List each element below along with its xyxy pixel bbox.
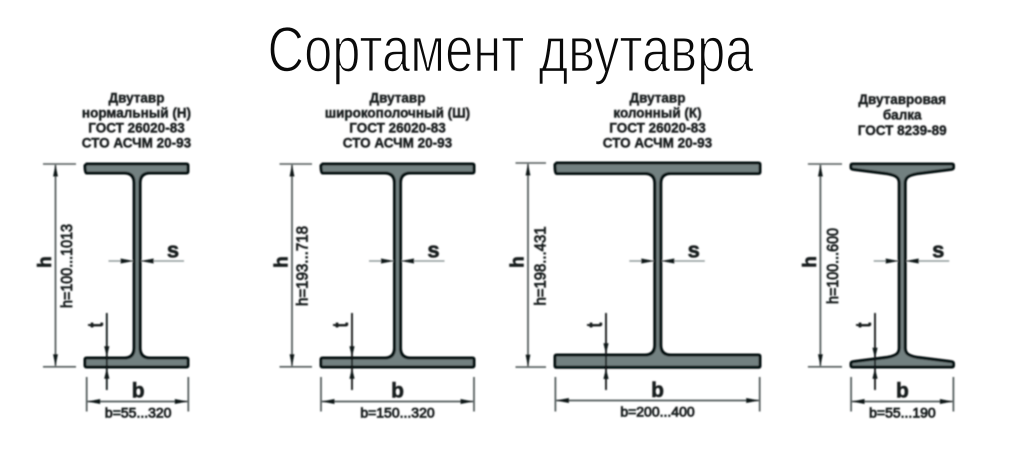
- svg-text:h=100...600: h=100...600: [825, 228, 842, 304]
- svg-text:h: h: [272, 256, 293, 268]
- svg-text:СТО АСЧМ 20-93: СТО АСЧМ 20-93: [603, 136, 713, 151]
- svg-text:s: s: [932, 237, 944, 262]
- svg-text:h: h: [800, 256, 821, 268]
- svg-text:t: t: [328, 322, 353, 327]
- svg-text:ГОСТ 8239-89: ГОСТ 8239-89: [858, 123, 947, 138]
- svg-text:b: b: [132, 379, 145, 402]
- svg-text:Двутавр: Двутавр: [109, 91, 165, 106]
- svg-text:b: b: [651, 379, 664, 402]
- svg-text:Двутавр: Двутавр: [630, 91, 686, 106]
- svg-text:колонный (К): колонный (К): [613, 106, 701, 121]
- svg-text:СТО АСЧМ 20-93: СТО АСЧМ 20-93: [343, 136, 453, 151]
- svg-text:b=150...320: b=150...320: [360, 405, 435, 421]
- svg-text:t: t: [851, 322, 876, 327]
- svg-text:Двутавровая: Двутавровая: [858, 92, 946, 107]
- svg-text:h=100...1013: h=100...1013: [59, 224, 76, 308]
- svg-text:Двутавр: Двутавр: [370, 91, 426, 106]
- svg-text:h=198...431: h=198...431: [533, 226, 550, 305]
- svg-text:b: b: [896, 379, 909, 402]
- svg-text:b=55...190: b=55...190: [869, 405, 936, 421]
- svg-text:s: s: [688, 237, 700, 262]
- svg-text:t: t: [83, 322, 108, 327]
- svg-text:широкополочный (Ш): широкополочный (Ш): [325, 106, 470, 121]
- svg-text:t: t: [582, 322, 607, 327]
- svg-text:ГОСТ 26020-83: ГОСТ 26020-83: [88, 121, 185, 136]
- svg-text:ГОСТ 26020-83: ГОСТ 26020-83: [349, 121, 446, 136]
- svg-text:b=55...320: b=55...320: [105, 405, 172, 421]
- svg-text:балка: балка: [883, 108, 922, 123]
- svg-text:СТО АСЧМ 20-93: СТО АСЧМ 20-93: [82, 136, 192, 151]
- svg-text:b=200...400: b=200...400: [620, 404, 695, 420]
- svg-text:нормальный (Н): нормальный (Н): [82, 106, 191, 121]
- svg-text:b: b: [391, 379, 404, 402]
- svg-text:h: h: [508, 256, 529, 268]
- svg-text:h=193...718: h=193...718: [295, 226, 312, 306]
- svg-text:s: s: [427, 237, 439, 262]
- svg-text:s: s: [167, 237, 179, 262]
- svg-text:ГОСТ 26020-83: ГОСТ 26020-83: [609, 121, 706, 136]
- svg-text:h: h: [35, 256, 56, 268]
- svg-text:Сортамент двутавра: Сортамент двутавра: [268, 14, 754, 86]
